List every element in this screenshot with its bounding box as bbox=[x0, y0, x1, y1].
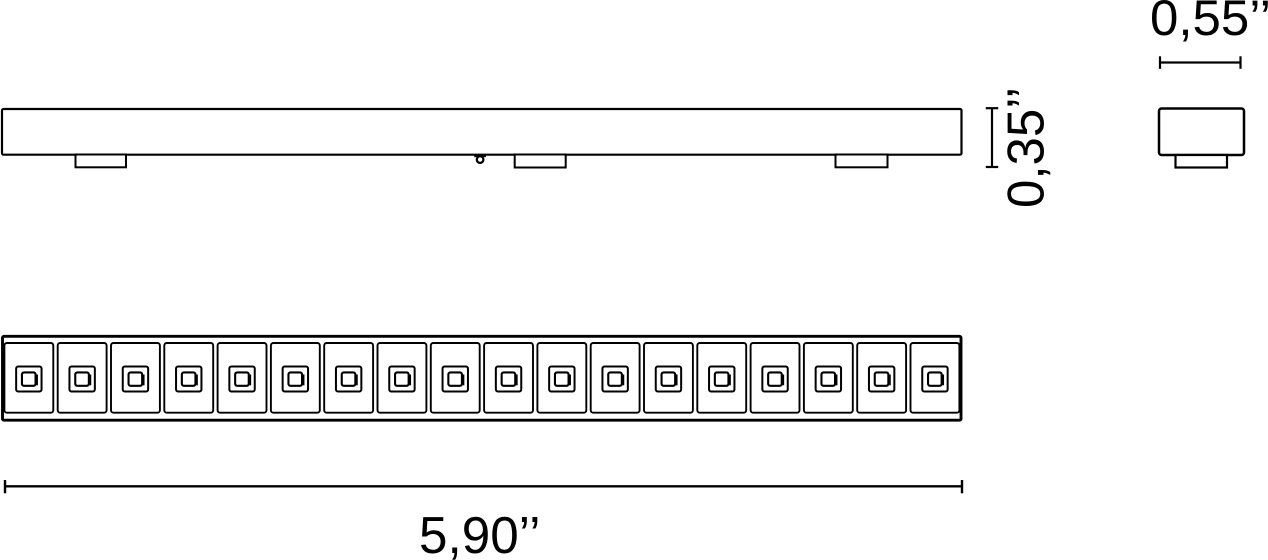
svg-text:5,90’’: 5,90’’ bbox=[419, 506, 541, 560]
svg-text:0,55’’: 0,55’’ bbox=[1150, 0, 1268, 46]
svg-text:0,35’’: 0,35’’ bbox=[997, 87, 1055, 208]
